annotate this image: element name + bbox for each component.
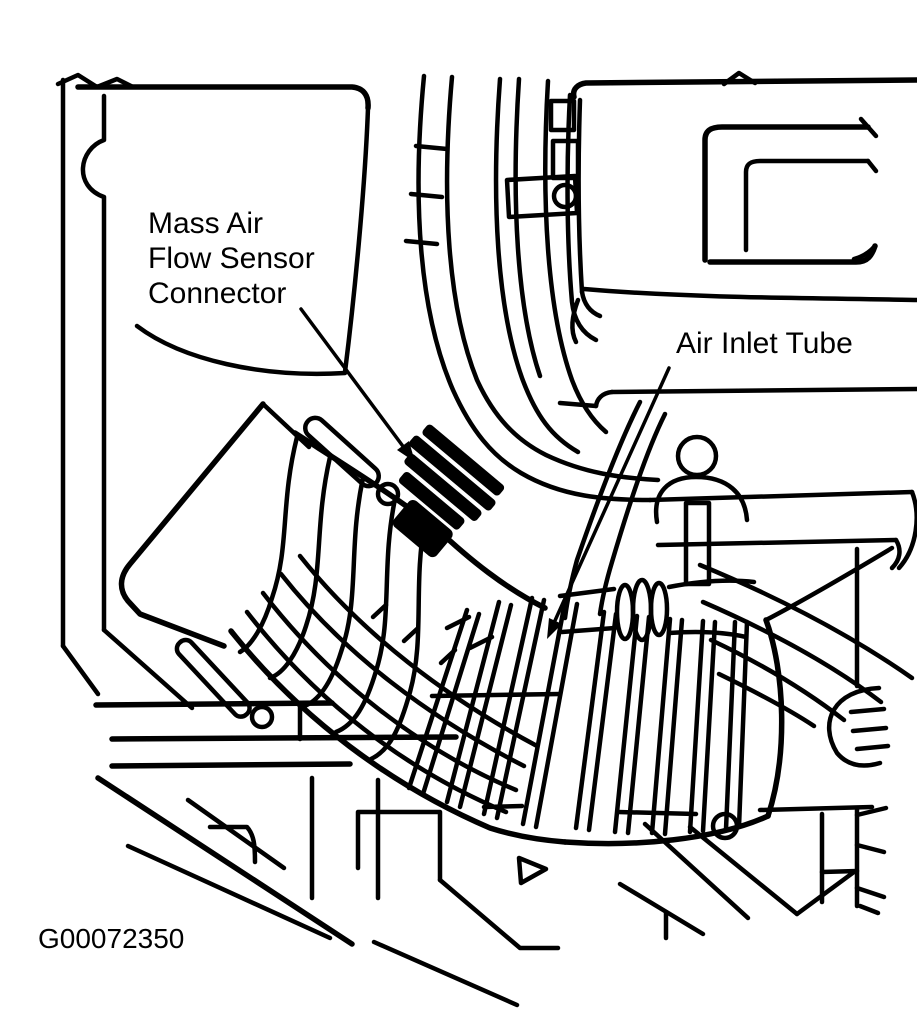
figure-code: G00072350 [38,923,184,954]
label-maf-line3: Connector [148,277,286,310]
label-maf-line1: Mass Air [148,207,263,240]
label-maf-line2: Flow Sensor [148,242,315,275]
label-air-inlet-tube: Air Inlet Tube [676,327,853,360]
diagram-background [0,0,917,1022]
diagram-canvas: Mass Air Flow Sensor Connector Air Inlet… [0,0,917,1022]
engine-bay-diagram: Mass Air Flow Sensor Connector Air Inlet… [0,0,917,1022]
